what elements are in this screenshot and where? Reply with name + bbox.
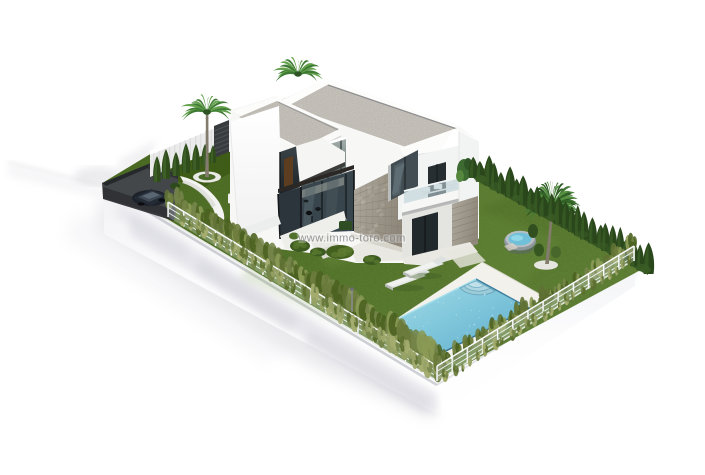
svg-text:www.immo-toro.com: www.immo-toro.com <box>297 233 405 245</box>
